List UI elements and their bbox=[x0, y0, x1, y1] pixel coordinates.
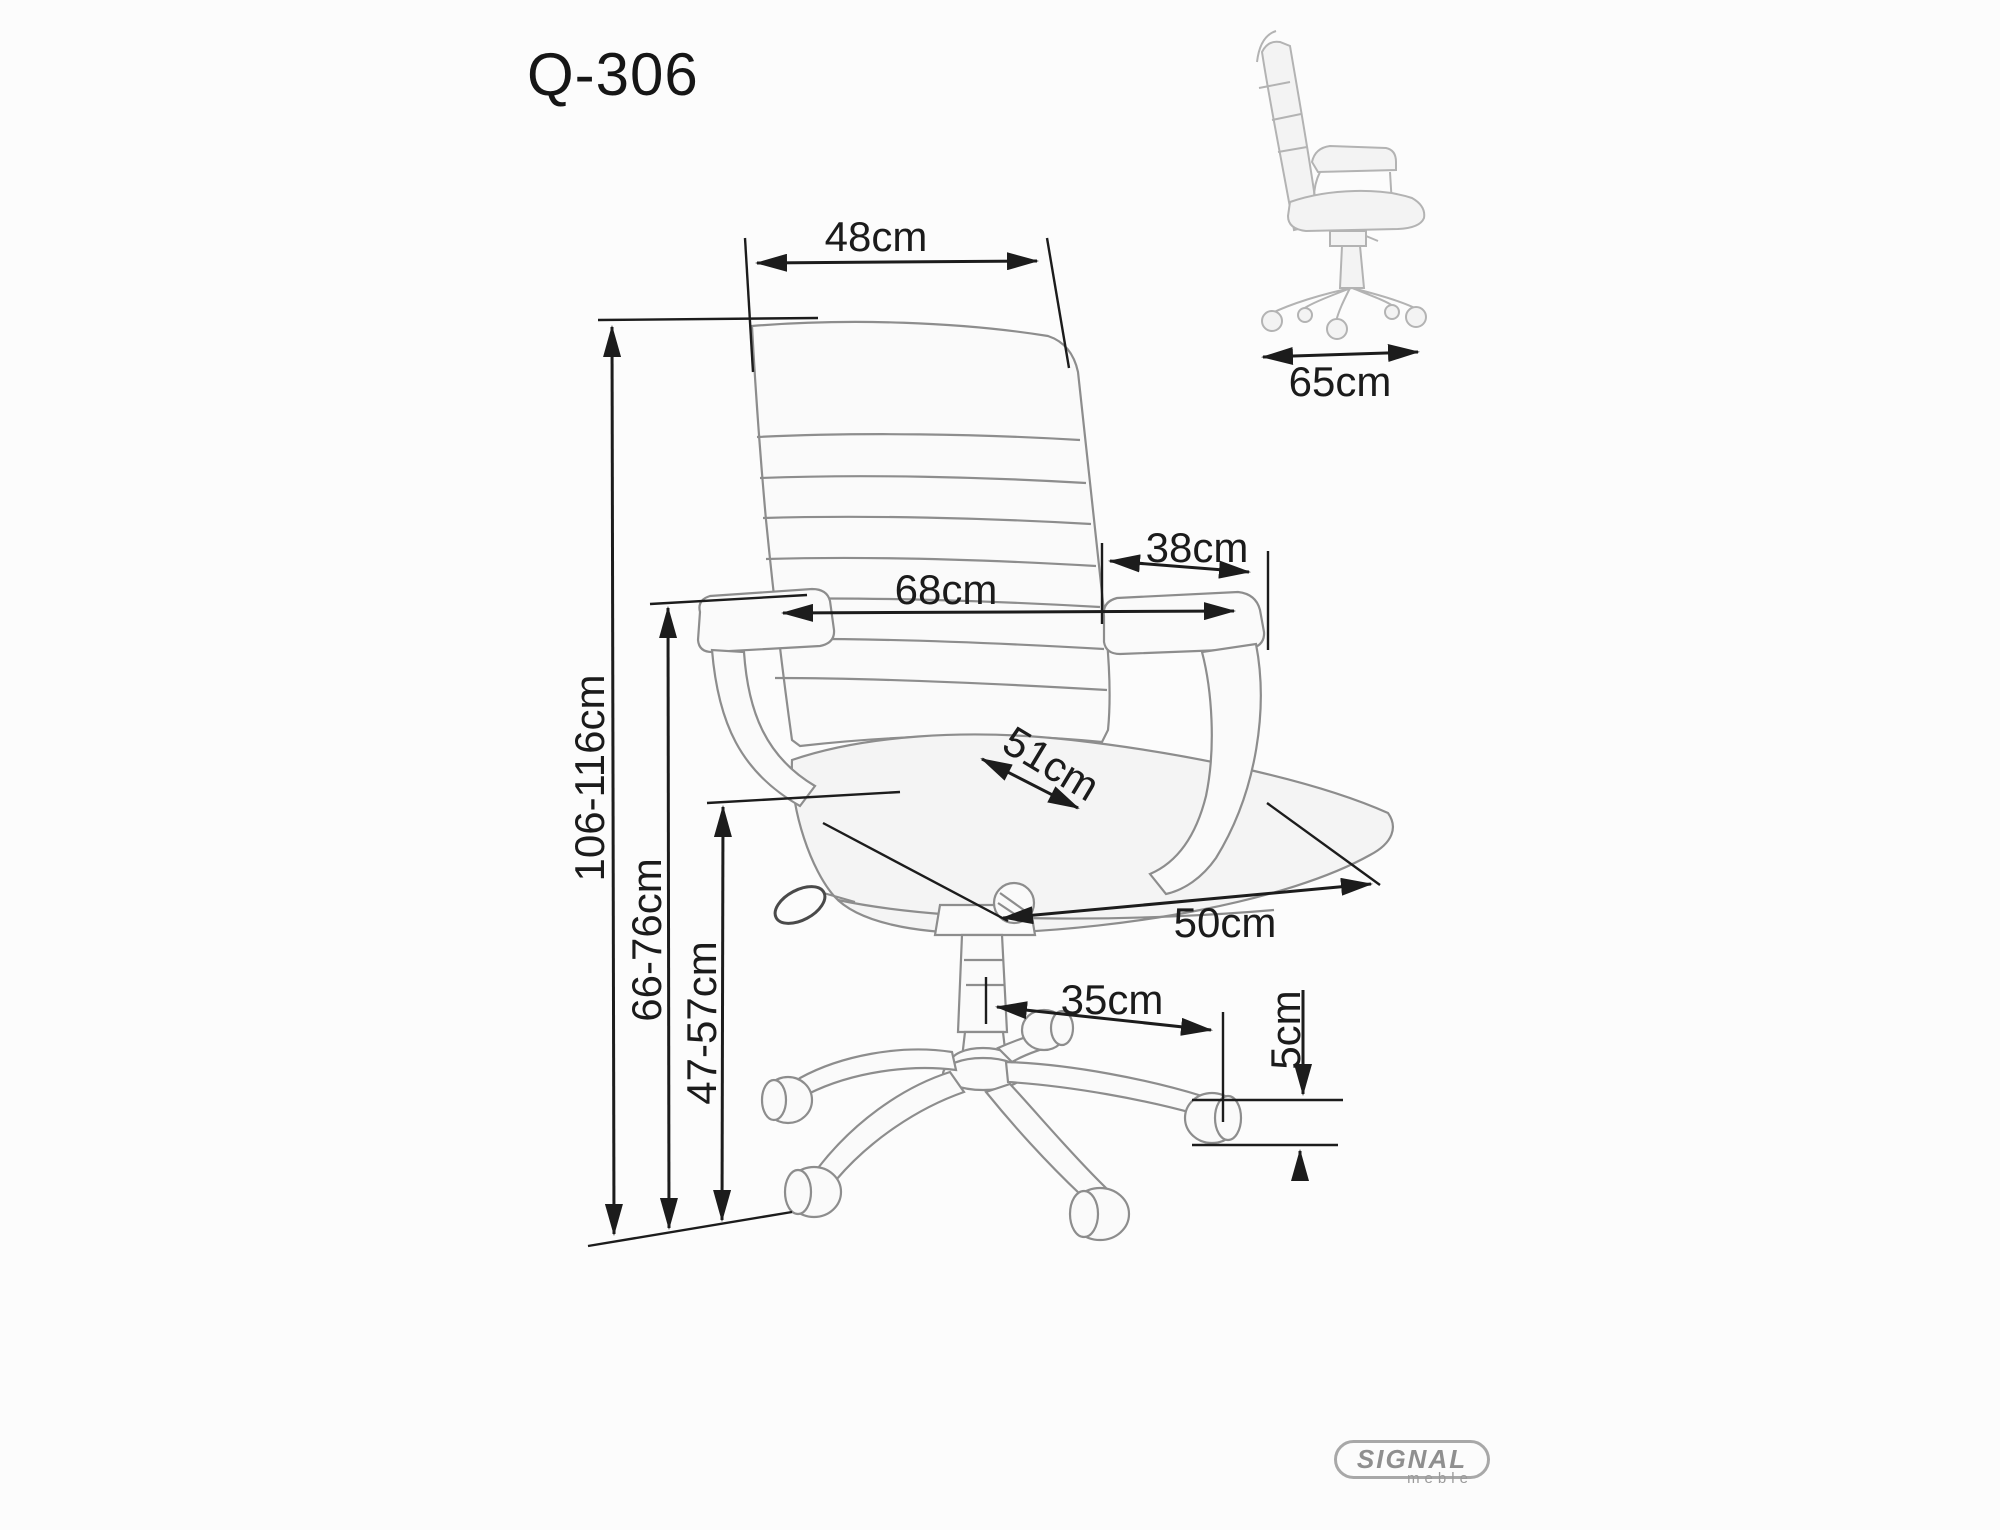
dim-label-overall-height: 106-116cm bbox=[569, 674, 611, 881]
dim-line-backrest-width bbox=[757, 261, 1037, 263]
diagram-canvas bbox=[0, 0, 2000, 1530]
side-view-sketch bbox=[1257, 31, 1426, 339]
dim-label-overall-depth: 65cm bbox=[1289, 361, 1392, 403]
dim-label-overall-width: 68cm bbox=[895, 569, 998, 611]
floor-line bbox=[588, 1212, 792, 1246]
product-dimension-diagram: Q-306 48cm 38cm 68cm 51cm 50cm 35cm 5cm … bbox=[0, 0, 2000, 1530]
ext-height-top bbox=[598, 318, 818, 320]
gas-lift-column bbox=[958, 935, 1007, 1032]
side-armrest bbox=[1312, 146, 1396, 172]
dim-line-overall-depth bbox=[1263, 352, 1418, 357]
dim-label-armrest-length: 38cm bbox=[1146, 527, 1249, 569]
side-casters bbox=[1262, 305, 1426, 339]
lever-paddle bbox=[769, 879, 831, 931]
side-column bbox=[1340, 246, 1364, 288]
dim-label-seat-depth: 50cm bbox=[1174, 902, 1277, 944]
dim-label-armrest-height: 66-76cm bbox=[626, 858, 668, 1021]
dim-label-seat-height: 47-57cm bbox=[681, 941, 723, 1104]
dim-label-caster-height: 5cm bbox=[1265, 990, 1307, 1069]
right-armrest-pad bbox=[1104, 592, 1264, 654]
side-seat bbox=[1288, 191, 1424, 231]
ext-48-left bbox=[745, 238, 753, 372]
dim-label-base-arm-span: 35cm bbox=[1061, 979, 1164, 1021]
brand-logo-subtitle: meble bbox=[1398, 1470, 1482, 1487]
dim-label-backrest-width: 48cm bbox=[825, 216, 928, 258]
dim-line-overall-width bbox=[783, 611, 1234, 613]
model-title: Q-306 bbox=[527, 40, 699, 109]
